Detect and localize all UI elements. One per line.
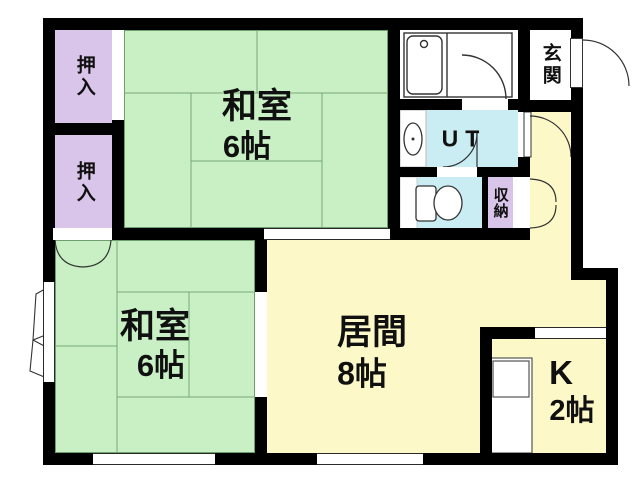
toilet-tank-icon [416, 186, 436, 221]
bath-door-arc [462, 55, 506, 99]
wall-left [43, 18, 55, 465]
closet-lower-door-arcs [55, 240, 111, 267]
kitchen-window [535, 327, 606, 339]
wall-mid-horizontal-east [388, 228, 530, 240]
wall-closet-right [112, 120, 124, 240]
toilet-side-strip [400, 177, 417, 230]
label-closet-lower: 押入 [74, 161, 93, 205]
wall-washitsu-living-lower [255, 397, 267, 453]
label-washitsu-top-size: 6帖 [223, 131, 271, 163]
label-washitsu-top-name: 和室 [222, 89, 292, 125]
wall-toilet-storage-divider [482, 177, 488, 230]
wall-mid-horizontal-west [112, 228, 264, 240]
bathtub-icon [407, 36, 442, 94]
bath-door-opening [462, 99, 508, 110]
label-closet-upper: 押入 [74, 55, 93, 99]
label-washitsu-bottom-size: 6帖 [137, 350, 185, 382]
label-washitsu-bottom-name: 和室 [120, 309, 190, 345]
label-kitchen-size: 2帖 [549, 397, 594, 427]
wall-ut-hall-divider [518, 157, 530, 177]
kitchen-sink-icon [493, 361, 529, 397]
washbasin-drain [412, 138, 415, 141]
label-living-size: 8帖 [337, 358, 387, 391]
wall-kitchen-left [480, 327, 492, 453]
bottom-window-west [93, 453, 215, 465]
label-storage: 収納 [492, 187, 507, 219]
toilet-bowl-icon [434, 186, 462, 220]
ut-door-leaf [524, 112, 531, 157]
floorplan: 和室 6帖 和室 6帖 居間 8帖 K 2帖 UT 玄関 押入 押入 収納 [0, 0, 640, 480]
bottom-window-east [317, 453, 423, 465]
storage-double-door-arcs [530, 179, 556, 228]
toilet-door-opening [437, 167, 477, 177]
label-living-name: 居間 [337, 315, 407, 351]
label-utility: UT [442, 127, 487, 150]
wall-right-lower [606, 268, 618, 465]
wall-washitsu-bath-divider [388, 18, 400, 240]
entrance-door-leaf [570, 38, 583, 88]
sliding-door-opening [264, 228, 390, 240]
wall-top [43, 18, 583, 30]
bathtub-drain-icon [421, 41, 428, 48]
entrance-door-arc [583, 40, 629, 86]
wall-genkan-bottom [518, 100, 583, 112]
wall-between-closets [43, 123, 124, 135]
tatami-lines-lower [55, 240, 255, 453]
label-genkan: 玄関 [540, 43, 559, 87]
closet-lower-opening [53, 228, 112, 240]
left-window [43, 282, 55, 382]
ut-door-arc [530, 116, 571, 157]
wall-washitsu-living-upper [255, 240, 267, 292]
wall-bath-genkan-divider [518, 18, 530, 112]
label-kitchen-name: K [549, 356, 573, 390]
